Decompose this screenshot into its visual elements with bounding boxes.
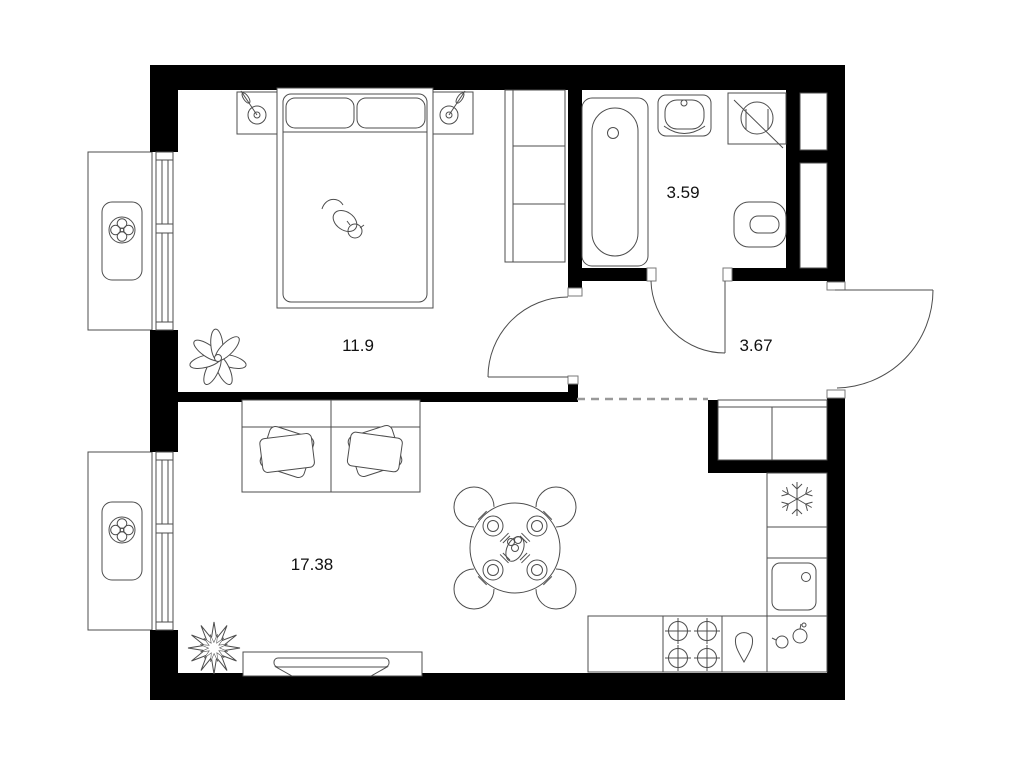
pillow xyxy=(259,433,315,473)
pillow xyxy=(357,98,425,128)
room-label-hallway: 3.67 xyxy=(739,336,772,355)
walls xyxy=(150,65,845,700)
door-jambs xyxy=(568,268,845,398)
window-living xyxy=(156,452,173,630)
plant-icon xyxy=(188,329,247,387)
bedroom-door xyxy=(488,297,568,377)
washing-machine-icon xyxy=(728,93,786,148)
kitchen-sink xyxy=(772,563,816,610)
toilet xyxy=(734,202,786,247)
bed xyxy=(277,88,433,308)
balcony-basket-bottom xyxy=(88,452,152,630)
room-label-bathroom: 3.59 xyxy=(666,183,699,202)
room-label-living: 17.38 xyxy=(291,555,334,574)
door-swing-arc xyxy=(837,290,933,388)
bathroom-sink xyxy=(658,95,711,136)
floor-plan-canvas: 11.9 3.59 3.67 17.38 xyxy=(0,0,1024,768)
door-swing-arc xyxy=(488,297,568,377)
dining-set xyxy=(454,487,576,609)
tv xyxy=(274,658,389,667)
hallway-closet xyxy=(718,400,827,460)
duct-shaft xyxy=(800,93,827,150)
bathtub xyxy=(582,98,648,266)
duct-shaft xyxy=(800,163,827,268)
bathroom-door xyxy=(651,281,725,353)
balcony-basket-top xyxy=(88,152,152,330)
nightstand-left xyxy=(237,91,277,134)
tv-stand xyxy=(243,652,422,676)
dining-table xyxy=(470,503,560,593)
floor-plan: 11.9 3.59 3.67 17.38 xyxy=(0,0,1024,768)
sofa xyxy=(242,400,420,492)
pillow xyxy=(286,98,354,128)
wardrobe xyxy=(505,90,565,262)
nightstand-right xyxy=(433,91,473,134)
spiky-plant-icon xyxy=(188,622,240,674)
entrance-door xyxy=(835,290,933,388)
door-swing-arc xyxy=(651,281,725,353)
pillow xyxy=(347,432,403,473)
window-bedroom xyxy=(156,152,173,330)
room-label-bedroom: 11.9 xyxy=(342,336,374,355)
